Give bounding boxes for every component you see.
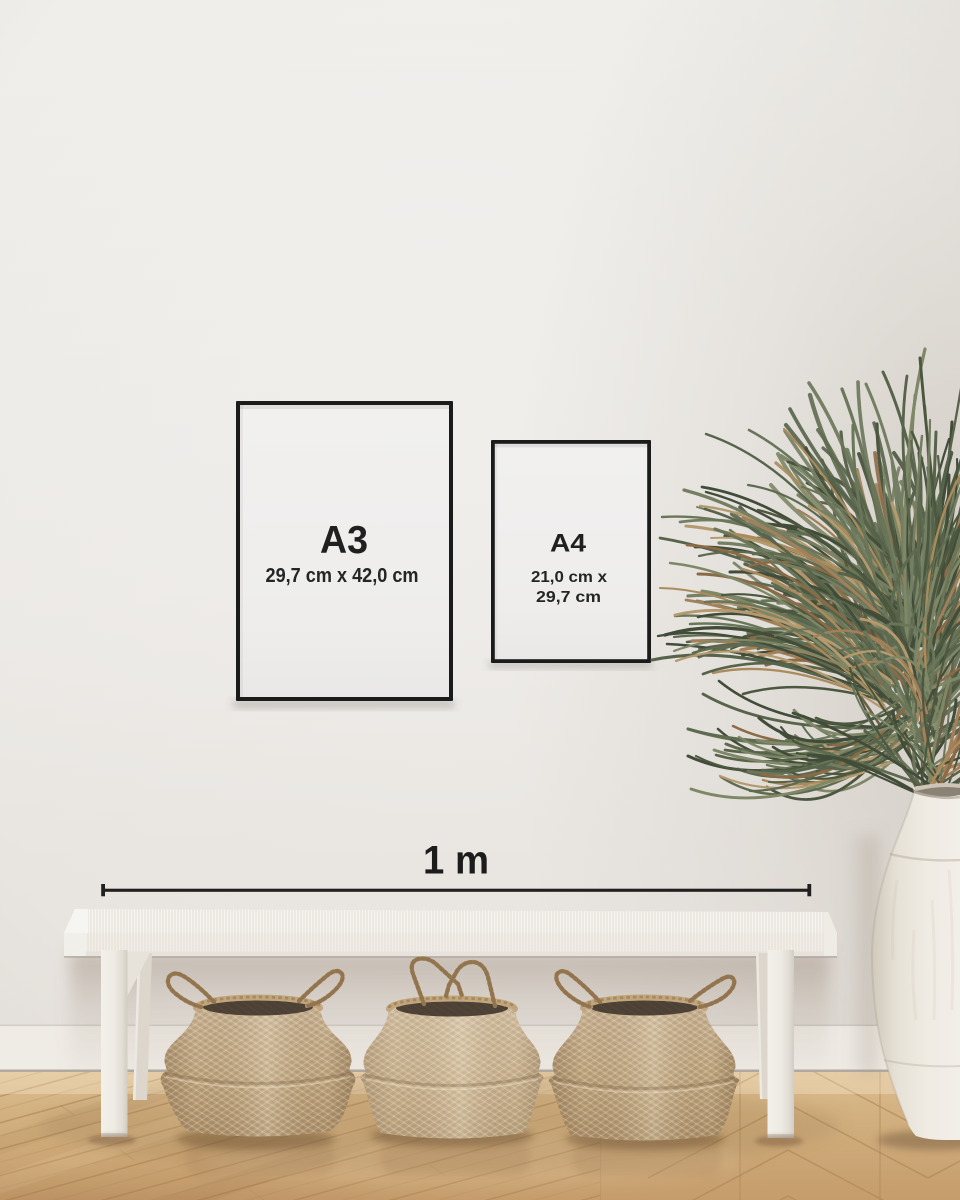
svg-text:29,7 cm x 42,0 cm: 29,7 cm x 42,0 cm — [266, 565, 419, 587]
svg-text:A4: A4 — [550, 530, 586, 558]
svg-text:21,0 cm x: 21,0 cm x — [531, 569, 607, 586]
svg-text:1 m: 1 m — [423, 839, 489, 883]
svg-text:29,7 cm: 29,7 cm — [536, 589, 601, 606]
svg-text:A3: A3 — [320, 519, 368, 562]
